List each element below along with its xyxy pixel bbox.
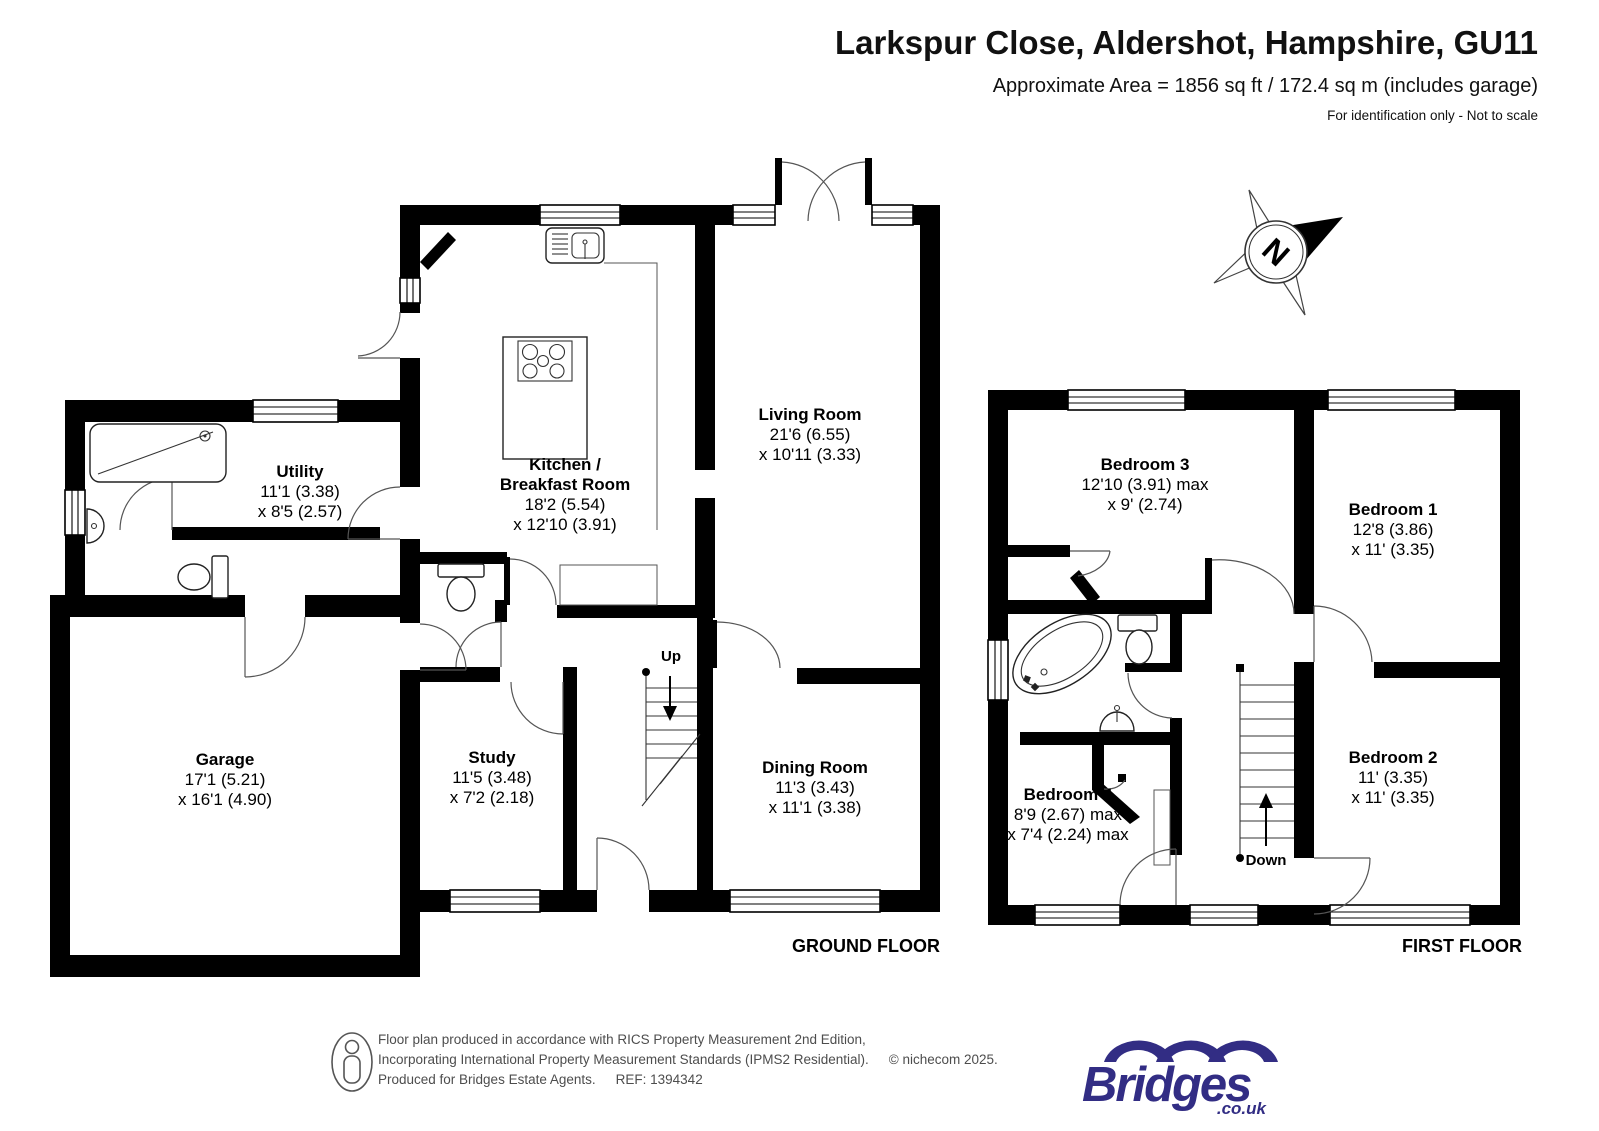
footer-line1: Floor plan produced in accordance with R… xyxy=(378,1030,998,1050)
footer-copyright: © nichecom 2025. xyxy=(889,1050,998,1070)
bathroom-sink-icon xyxy=(1100,706,1134,732)
footer-disclaimer: Floor plan produced in accordance with R… xyxy=(378,1030,998,1090)
room-label-bedroom2: Bedroom 2 11' (3.35) x 11' (3.35) xyxy=(1349,748,1438,808)
bathroom-toilet-icon xyxy=(1118,615,1157,664)
first-floor-label: FIRST FLOOR xyxy=(1402,936,1522,957)
stairs-down xyxy=(1236,664,1294,862)
compass-icon: N xyxy=(1214,190,1343,315)
utility-sink-icon xyxy=(87,509,104,543)
footer-ref: REF: 1394342 xyxy=(616,1070,703,1090)
room-label-utility: Utility 11'1 (3.38) x 8'5 (2.57) xyxy=(258,462,343,522)
stairs-down-label: Down xyxy=(1246,852,1287,869)
room-label-bedroom1: Bedroom 1 12'8 (3.86) x 11' (3.35) xyxy=(1349,500,1438,560)
room-label-study: Study 11'5 (3.48) x 7'2 (2.18) xyxy=(450,748,535,808)
footer-line3: Produced for Bridges Estate Agents. xyxy=(378,1070,596,1090)
stairs-up-label: Up xyxy=(661,648,681,665)
kitchen-sink-icon xyxy=(546,228,604,263)
utility-toilet-icon xyxy=(178,556,228,598)
shower-icon xyxy=(90,424,226,482)
room-label-bedroom3: Bedroom 3 12'10 (3.91) max x 9' (2.74) xyxy=(1081,455,1208,515)
area-subtitle: Approximate Area = 1856 sq ft / 172.4 sq… xyxy=(993,75,1538,98)
bridges-logo: Bridges .co.uk xyxy=(1082,1041,1278,1118)
bridges-logo-suffix: .co.uk xyxy=(1217,1099,1268,1118)
ground-floor-label: GROUND FLOOR xyxy=(792,936,940,957)
ground-floor-plan xyxy=(50,158,940,977)
room-label-living: Living Room 21'6 (6.55) x 10'11 (3.33) xyxy=(759,405,862,465)
room-label-dining: Dining Room 11'3 (3.43) x 11'1 (3.38) xyxy=(762,758,868,818)
room-label-garage: Garage 17'1 (5.21) x 16'1 (4.90) xyxy=(178,750,272,810)
room-label-bedroom4: Bedroom 4 8'9 (2.67) max x 7'4 (2.24) ma… xyxy=(1007,785,1128,845)
kitchen-worktop xyxy=(560,565,657,605)
page-title: Larkspur Close, Aldershot, Hampshire, GU… xyxy=(835,24,1538,62)
stove-icon xyxy=(503,337,587,459)
person-icon xyxy=(332,1033,372,1091)
footer-line2: Incorporating International Property Mea… xyxy=(378,1050,869,1070)
stairs-up xyxy=(642,668,700,806)
bath-icon xyxy=(999,598,1125,710)
floorplan-page: N Bridges .co.uk Larkspur Close, Aldersh… xyxy=(0,0,1599,1131)
cloakroom-toilet-icon xyxy=(438,564,484,611)
floorplan-drawing: N Bridges .co.uk xyxy=(0,0,1599,1131)
room-label-kitchen: Kitchen / Breakfast Room 18'2 (5.54) x 1… xyxy=(500,455,630,535)
scale-note: For identification only - Not to scale xyxy=(1327,108,1538,123)
